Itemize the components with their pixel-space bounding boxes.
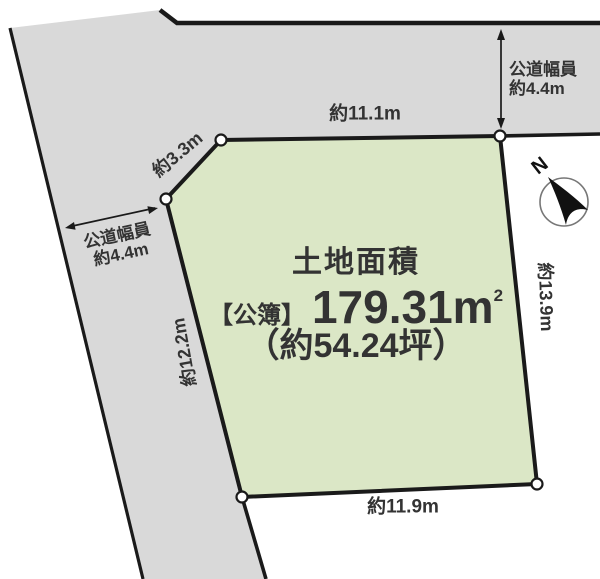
dimension-top: 約11.1m	[329, 105, 401, 126]
road-width-label-top: 公道幅員 約4.4m	[509, 60, 577, 98]
parcel-area-text: 土地面積 【公簿】 179.31 m 2 （約54.24坪）	[209, 246, 503, 366]
parcel-area-unit-sup: 2	[494, 286, 503, 306]
road-width-label-top-line1: 公道幅員	[509, 60, 577, 79]
dimension-bottom: 約11.9m	[367, 498, 439, 519]
parcel-area-prefix: 【公簿】	[209, 295, 305, 330]
parcel-area-line: 【公簿】 179.31 m 2	[209, 280, 503, 326]
corner-marker	[237, 492, 248, 503]
dimension-right: 約13.9m	[534, 262, 556, 332]
parcel-title: 土地面積	[292, 246, 420, 280]
parcel-area-tsubo: （約54.24坪）	[245, 326, 466, 366]
road-width-label-top-line2: 約4.4m	[509, 79, 577, 98]
road-top-boundary	[160, 10, 600, 23]
road-bottom-boundary-right	[500, 134, 600, 136]
corner-marker	[161, 194, 172, 205]
corner-marker	[495, 131, 506, 142]
compass	[540, 177, 588, 226]
corner-marker	[532, 479, 543, 490]
land-plot-diagram: 約11.1m 約11.9m 約3.3m 約12.2m 約13.9m 公道幅員 約…	[0, 0, 600, 579]
corner-marker	[216, 135, 227, 146]
